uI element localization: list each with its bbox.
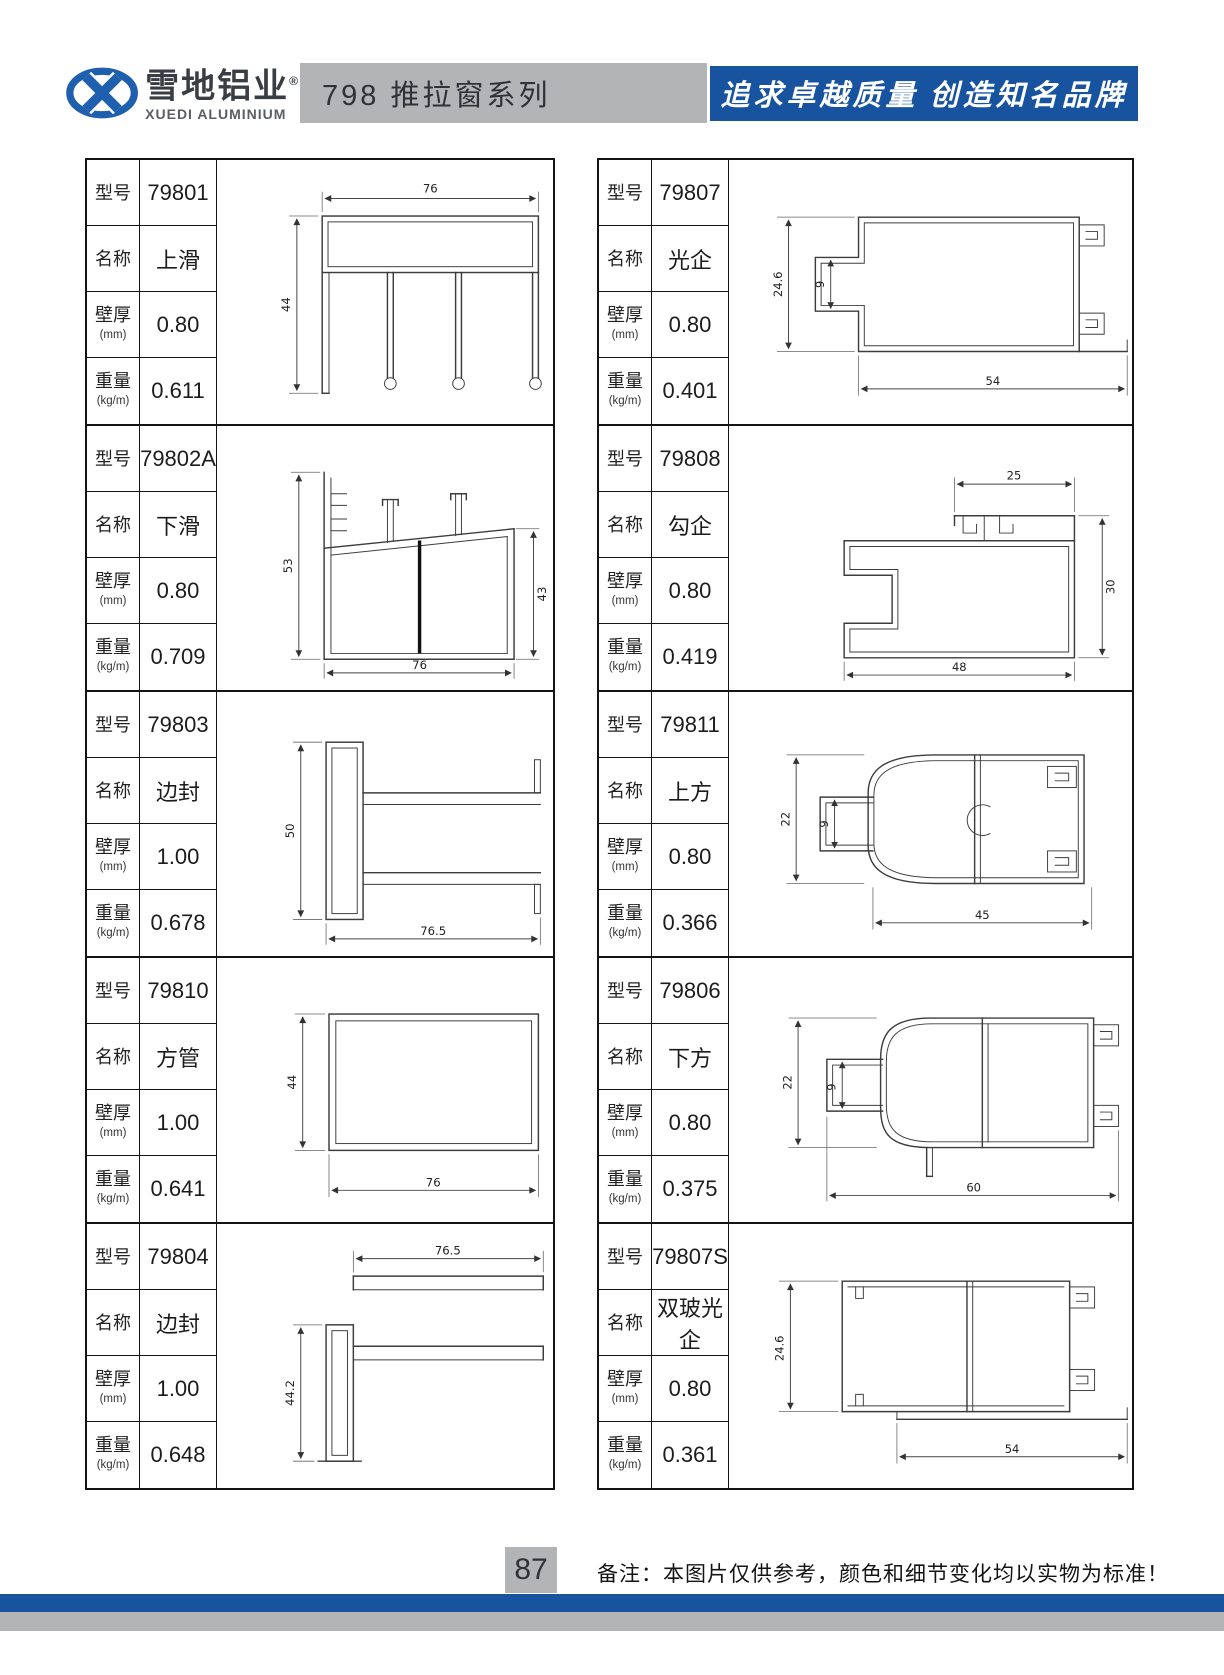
spec-value-weight: 0.648	[140, 1422, 217, 1488]
spec-label-name: 名称	[87, 758, 140, 824]
spec-table: 型号 79801 名称 上滑 壁厚(mm) 0.80 重量(kg/m) 0.61…	[87, 160, 217, 424]
spec-value-name: 下方	[652, 1024, 729, 1090]
product-block-79806: 型号 79806 名称 下方 壁厚(mm) 0.80 重量(kg/m) 0.37…	[597, 956, 1134, 1224]
product-block-79807: 型号 79807 名称 光企 壁厚(mm) 0.80 重量(kg/m) 0.40…	[597, 158, 1134, 426]
spec-value-thickness: 0.80	[652, 1356, 729, 1422]
product-block-79801: 型号 79801 名称 上滑 壁厚(mm) 0.80 重量(kg/m) 0.61…	[85, 158, 555, 426]
spec-value-thickness: 1.00	[140, 1356, 217, 1422]
svg-text:9: 9	[817, 820, 831, 827]
left-column: 型号 79801 名称 上滑 壁厚(mm) 0.80 重量(kg/m) 0.61…	[85, 158, 555, 1490]
profile-drawing-79804: 76.5 44.2	[217, 1224, 553, 1488]
spec-value-model: 79811	[652, 692, 729, 758]
svg-text:9: 9	[825, 1083, 839, 1090]
spec-value-weight: 0.366	[652, 890, 729, 956]
spec-label-model: 型号	[87, 692, 140, 758]
svg-text:53: 53	[281, 558, 295, 573]
profile-drawing-79806: 22 9 60	[729, 958, 1132, 1222]
spec-table: 型号 79810 名称 方管 壁厚(mm) 1.00 重量(kg/m) 0.64…	[87, 958, 217, 1222]
product-block-79810: 型号 79810 名称 方管 壁厚(mm) 1.00 重量(kg/m) 0.64…	[85, 956, 555, 1224]
spec-label-name: 名称	[599, 226, 652, 292]
spec-value-weight: 0.361	[652, 1422, 729, 1488]
brand-text: 雪地铝业® XUEDI ALUMINIUM	[145, 64, 300, 121]
product-block-79803: 型号 79803 名称 边封 壁厚(mm) 1.00 重量(kg/m) 0.67…	[85, 690, 555, 958]
svg-text:76: 76	[426, 1175, 441, 1189]
svg-text:76: 76	[412, 658, 427, 672]
spec-label-thickness: 壁厚(mm)	[87, 292, 140, 358]
spec-label-thickness: 壁厚(mm)	[599, 824, 652, 890]
spec-label-weight: 重量(kg/m)	[87, 1422, 140, 1488]
svg-text:76.5: 76.5	[435, 1244, 461, 1258]
spec-label-name: 名称	[87, 492, 140, 558]
spec-table: 型号 79807S 名称 双玻光企 壁厚(mm) 0.80 重量(kg/m) 0…	[599, 1224, 729, 1488]
brand-name-cn: 雪地铝业®	[145, 64, 300, 103]
spec-table: 型号 79803 名称 边封 壁厚(mm) 1.00 重量(kg/m) 0.67…	[87, 692, 217, 956]
logo-ellipse-x-icon	[65, 58, 139, 128]
spec-label-model: 型号	[87, 160, 140, 226]
spec-value-weight: 0.678	[140, 890, 217, 956]
spec-label-weight: 重量(kg/m)	[599, 1422, 652, 1488]
spec-label-model: 型号	[599, 1224, 652, 1290]
svg-text:22: 22	[778, 812, 792, 827]
spec-label-thickness: 壁厚(mm)	[87, 824, 140, 890]
spec-label-model: 型号	[87, 958, 140, 1024]
brand-name-en: XUEDI ALUMINIUM	[145, 106, 300, 122]
spec-label-name: 名称	[599, 1290, 652, 1356]
svg-text:45: 45	[975, 908, 990, 922]
spec-label-model: 型号	[599, 426, 652, 492]
spec-value-weight: 0.709	[140, 624, 217, 690]
spec-value-name: 上方	[652, 758, 729, 824]
spec-value-weight: 0.611	[140, 358, 217, 424]
profile-drawing-79803: 50 76.5	[217, 692, 553, 956]
spec-label-name: 名称	[599, 1024, 652, 1090]
profile-drawing-79811: 22 9 45	[729, 692, 1132, 956]
series-title: 798 推拉窗系列	[322, 72, 550, 114]
spec-label-thickness: 壁厚(mm)	[87, 1090, 140, 1156]
spec-value-weight: 0.375	[652, 1156, 729, 1222]
spec-label-name: 名称	[87, 226, 140, 292]
spec-value-name: 光企	[652, 226, 729, 292]
spec-value-weight: 0.419	[652, 624, 729, 690]
product-grid: 型号 79801 名称 上滑 壁厚(mm) 0.80 重量(kg/m) 0.61…	[85, 158, 1134, 1490]
profile-drawing-79807S: 24.6 54	[729, 1224, 1132, 1488]
spec-label-thickness: 壁厚(mm)	[599, 1090, 652, 1156]
svg-text:44: 44	[285, 1075, 299, 1090]
profile-drawing-79807: 24.6 9 54	[729, 160, 1132, 424]
spec-value-thickness: 0.80	[652, 292, 729, 358]
spec-value-weight: 0.641	[140, 1156, 217, 1222]
spec-label-model: 型号	[87, 426, 140, 492]
spec-value-name: 下滑	[140, 492, 217, 558]
spec-label-weight: 重量(kg/m)	[599, 1156, 652, 1222]
registered-mark: ®	[289, 74, 300, 88]
profile-drawing-79802A: 53 43 76	[217, 426, 553, 690]
product-block-79808: 型号 79808 名称 勾企 壁厚(mm) 0.80 重量(kg/m) 0.41…	[597, 424, 1134, 692]
spec-value-thickness: 0.80	[140, 558, 217, 624]
spec-value-name: 边封	[140, 1290, 217, 1356]
spec-label-thickness: 壁厚(mm)	[599, 1356, 652, 1422]
svg-text:54: 54	[1005, 1442, 1020, 1456]
spec-label-weight: 重量(kg/m)	[87, 624, 140, 690]
footer-gray-bar	[0, 1612, 1224, 1631]
spec-value-thickness: 1.00	[140, 1090, 217, 1156]
spec-value-model: 79808	[652, 426, 729, 492]
series-title-bar: 798 推拉窗系列	[300, 63, 707, 123]
spec-label-name: 名称	[599, 758, 652, 824]
spec-label-model: 型号	[87, 1224, 140, 1290]
profile-drawing-79808: 25 30 48	[729, 426, 1132, 690]
right-column: 型号 79807 名称 光企 壁厚(mm) 0.80 重量(kg/m) 0.40…	[597, 158, 1134, 1490]
spec-table: 型号 79807 名称 光企 壁厚(mm) 0.80 重量(kg/m) 0.40…	[599, 160, 729, 424]
spec-label-weight: 重量(kg/m)	[599, 624, 652, 690]
svg-text:9: 9	[813, 281, 827, 288]
spec-value-thickness: 0.80	[652, 1090, 729, 1156]
spec-value-thickness: 0.80	[140, 292, 217, 358]
footer-blue-bar	[0, 1594, 1224, 1612]
spec-value-model: 79810	[140, 958, 217, 1024]
spec-label-name: 名称	[87, 1290, 140, 1356]
spec-label-name: 名称	[87, 1024, 140, 1090]
company-logo: 雪地铝业® XUEDI ALUMINIUM	[65, 58, 300, 128]
spec-value-thickness: 0.80	[652, 824, 729, 890]
spec-table: 型号 79802A 名称 下滑 壁厚(mm) 0.80 重量(kg/m) 0.7…	[87, 426, 217, 690]
spec-value-model: 79801	[140, 160, 217, 226]
product-block-79802A: 型号 79802A 名称 下滑 壁厚(mm) 0.80 重量(kg/m) 0.7…	[85, 424, 555, 692]
svg-text:44: 44	[279, 297, 293, 312]
spec-table: 型号 79804 名称 边封 壁厚(mm) 1.00 重量(kg/m) 0.64…	[87, 1224, 217, 1488]
svg-text:60: 60	[966, 1181, 981, 1195]
spec-value-name: 双玻光企	[652, 1290, 729, 1356]
profile-drawing-79810: 44 76	[217, 958, 553, 1222]
spec-label-weight: 重量(kg/m)	[87, 890, 140, 956]
catalog-page: 雪地铝业® XUEDI ALUMINIUM 798 推拉窗系列 追求卓越质量 创…	[0, 0, 1224, 1675]
svg-text:48: 48	[952, 660, 967, 674]
page-header: 雪地铝业® XUEDI ALUMINIUM 798 推拉窗系列 追求卓越质量 创…	[65, 58, 1140, 128]
spec-value-model: 79806	[652, 958, 729, 1024]
spec-label-weight: 重量(kg/m)	[599, 890, 652, 956]
product-block-79804: 型号 79804 名称 边封 壁厚(mm) 1.00 重量(kg/m) 0.64…	[85, 1222, 555, 1490]
slogan-bar: 追求卓越质量 创造知名品牌	[710, 66, 1138, 121]
product-block-79811: 型号 79811 名称 上方 壁厚(mm) 0.80 重量(kg/m) 0.36…	[597, 690, 1134, 958]
spec-label-model: 型号	[599, 958, 652, 1024]
spec-value-model: 79802A	[140, 426, 217, 492]
spec-table: 型号 79811 名称 上方 壁厚(mm) 0.80 重量(kg/m) 0.36…	[599, 692, 729, 956]
svg-text:25: 25	[1007, 468, 1022, 482]
svg-text:76: 76	[423, 182, 438, 196]
spec-label-weight: 重量(kg/m)	[87, 1156, 140, 1222]
spec-value-name: 上滑	[140, 226, 217, 292]
svg-text:24.6: 24.6	[773, 1336, 787, 1362]
footer-note: 备注：本图片仅供参考，颜色和细节变化均以实物为标准！	[597, 1558, 1169, 1588]
spec-value-model: 79803	[140, 692, 217, 758]
page-number: 87	[505, 1547, 557, 1593]
spec-table: 型号 79808 名称 勾企 壁厚(mm) 0.80 重量(kg/m) 0.41…	[599, 426, 729, 690]
svg-text:76.5: 76.5	[420, 924, 446, 938]
spec-label-weight: 重量(kg/m)	[599, 358, 652, 424]
svg-text:24.6: 24.6	[771, 272, 785, 298]
svg-text:50: 50	[283, 823, 297, 838]
spec-table: 型号 79806 名称 下方 壁厚(mm) 0.80 重量(kg/m) 0.37…	[599, 958, 729, 1222]
spec-label-thickness: 壁厚(mm)	[87, 1356, 140, 1422]
spec-value-model: 79807S	[652, 1224, 729, 1290]
svg-text:44.2: 44.2	[283, 1380, 297, 1406]
profile-drawing-79801: 76 44	[217, 160, 553, 424]
spec-label-weight: 重量(kg/m)	[87, 358, 140, 424]
spec-label-name: 名称	[599, 492, 652, 558]
spec-value-thickness: 1.00	[140, 824, 217, 890]
spec-label-model: 型号	[599, 692, 652, 758]
spec-value-thickness: 0.80	[652, 558, 729, 624]
spec-label-thickness: 壁厚(mm)	[87, 558, 140, 624]
spec-value-name: 方管	[140, 1024, 217, 1090]
spec-label-model: 型号	[599, 160, 652, 226]
svg-text:30: 30	[1104, 579, 1118, 594]
spec-value-name: 边封	[140, 758, 217, 824]
svg-text:22: 22	[780, 1075, 794, 1090]
slogan-text: 追求卓越质量 创造知名品牌	[720, 72, 1127, 114]
svg-text:43: 43	[535, 587, 549, 602]
spec-value-model: 79807	[652, 160, 729, 226]
spec-value-model: 79804	[140, 1224, 217, 1290]
spec-value-name: 勾企	[652, 492, 729, 558]
spec-label-thickness: 壁厚(mm)	[599, 558, 652, 624]
product-block-79807S: 型号 79807S 名称 双玻光企 壁厚(mm) 0.80 重量(kg/m) 0…	[597, 1222, 1134, 1490]
spec-label-thickness: 壁厚(mm)	[599, 292, 652, 358]
spec-value-weight: 0.401	[652, 358, 729, 424]
svg-text:54: 54	[986, 374, 1001, 388]
